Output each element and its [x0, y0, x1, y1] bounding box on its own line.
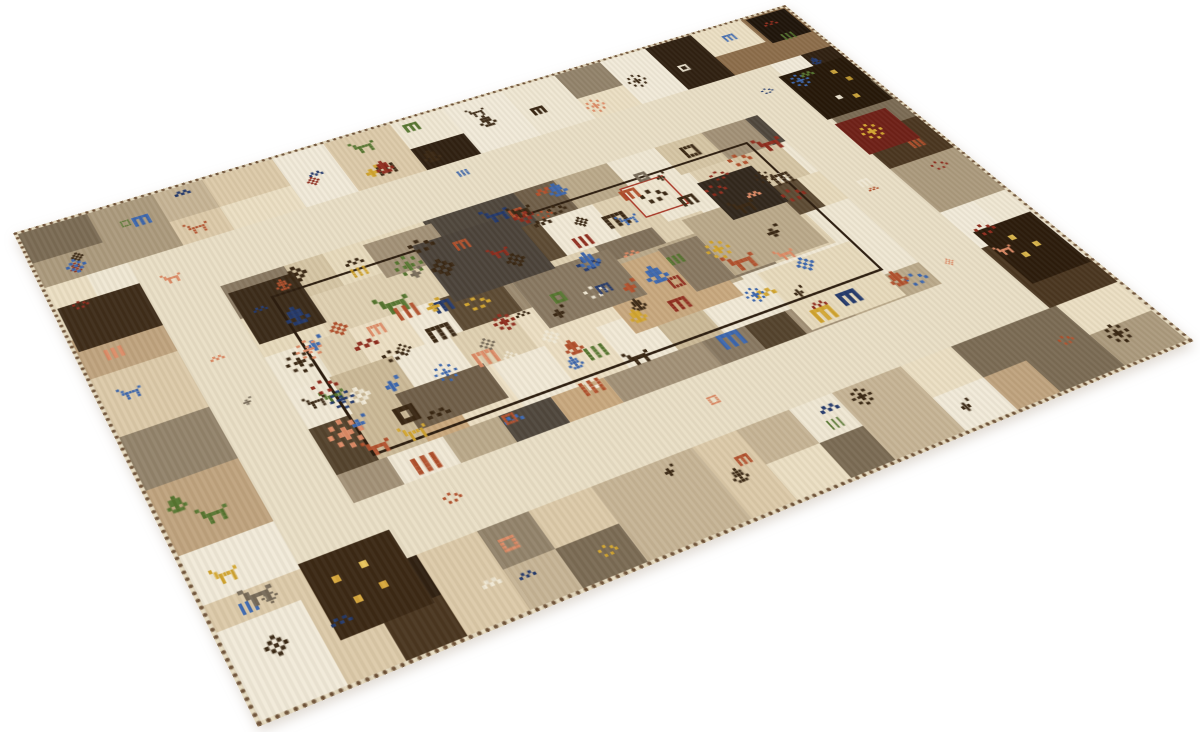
rug-photo — [13, 5, 1194, 727]
photo-background — [0, 0, 1200, 732]
rug-container — [0, 0, 1200, 732]
